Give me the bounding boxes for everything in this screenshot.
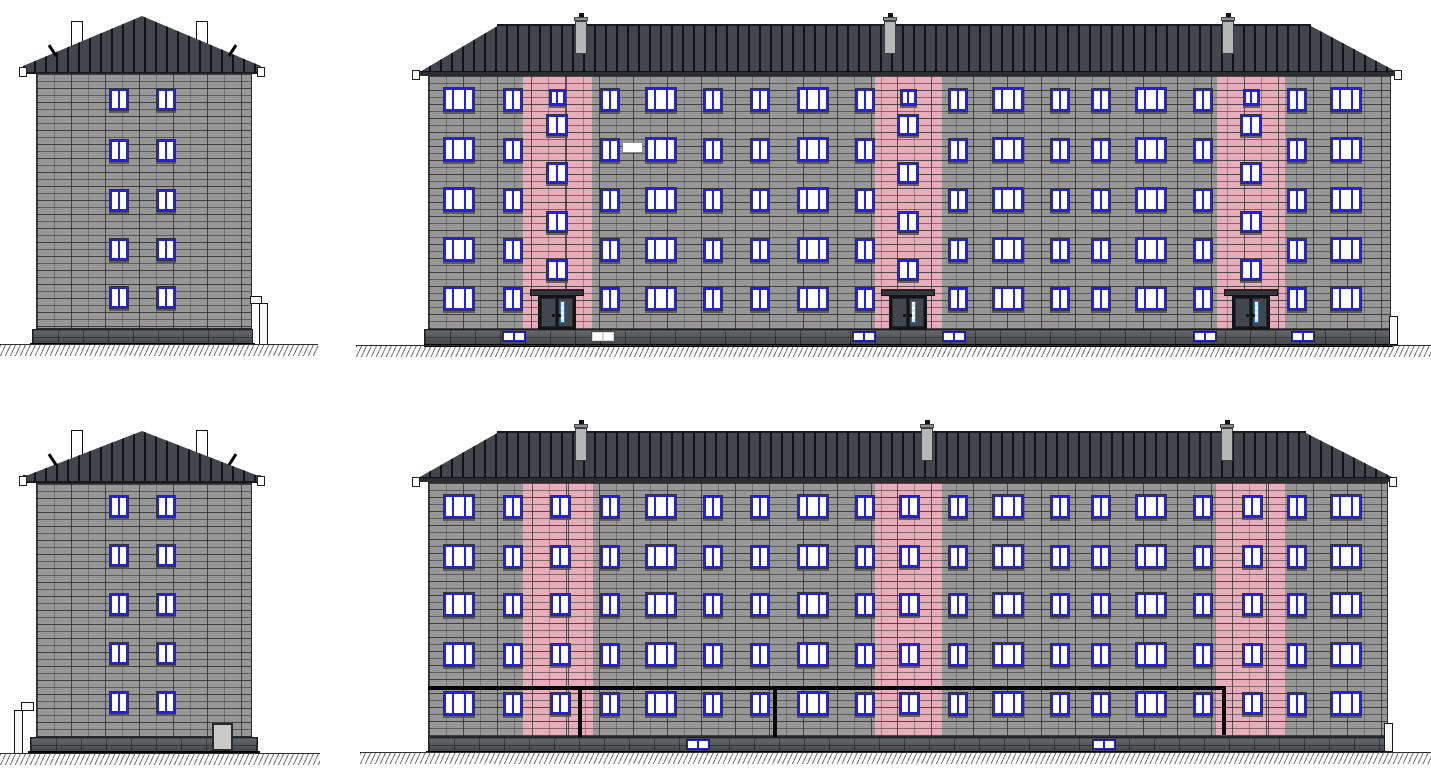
apartment-window (1330, 642, 1362, 667)
window-pane (808, 694, 817, 713)
stairwell-window (1242, 495, 1263, 518)
window-pane (820, 595, 826, 614)
apartment-window (992, 642, 1024, 667)
window-pane (1290, 548, 1296, 566)
apartment-window (992, 544, 1024, 569)
window-pane (902, 596, 909, 613)
window-pane (1253, 498, 1260, 515)
apartment-window (948, 545, 968, 569)
apartment-window (1091, 593, 1111, 617)
window-pane (1353, 694, 1359, 713)
window-pane (820, 497, 826, 516)
apartment-window (855, 643, 875, 667)
window-pane (454, 497, 463, 516)
window-pane (1204, 596, 1210, 614)
window-pane (656, 497, 665, 516)
window-pane (454, 547, 463, 566)
apartment-window (797, 494, 829, 519)
gas-pipe-drop (1222, 686, 1226, 735)
window-pane (800, 497, 806, 516)
apartment-window (1050, 692, 1070, 716)
stairwell-window (899, 593, 920, 616)
window-pane (1333, 547, 1339, 566)
gutter-cap (412, 477, 420, 487)
window-pane (808, 547, 817, 566)
window-pane (1341, 645, 1350, 664)
window-pane (454, 595, 463, 614)
apartment-window (503, 495, 523, 519)
window-pane (1146, 497, 1155, 516)
window-pane (995, 547, 1001, 566)
gas-pipe (428, 686, 1226, 690)
window-pane (1298, 596, 1304, 614)
window-pane (902, 695, 909, 712)
window-pane (1341, 694, 1350, 713)
window-pane (1094, 646, 1100, 664)
apartment-window (855, 545, 875, 569)
window-pane (1053, 646, 1059, 664)
window-pane (1196, 498, 1202, 516)
window-pane (706, 548, 712, 566)
apartment-window (443, 592, 475, 617)
window-pane (446, 547, 452, 566)
window-pane (603, 646, 609, 664)
window-pane (866, 646, 872, 664)
window-pane (656, 694, 665, 713)
apartment-window (600, 545, 620, 569)
window-pane (902, 646, 909, 663)
window-pane (995, 694, 1001, 713)
stairwell-window (550, 495, 571, 518)
window-pane (1015, 645, 1021, 664)
apartment-window (1091, 692, 1111, 716)
window-pane (668, 694, 674, 713)
apartment-window (992, 494, 1024, 519)
apartment-window (1050, 545, 1070, 569)
window-pane (706, 498, 712, 516)
apartment-window (992, 691, 1024, 716)
window-pane (820, 694, 826, 713)
window-pane (553, 498, 560, 515)
window-pane (648, 645, 654, 664)
roof-vent (1221, 428, 1233, 461)
window-pane (1094, 596, 1100, 614)
window-pane (951, 548, 957, 566)
window-pane (561, 596, 568, 613)
window-pane (466, 547, 472, 566)
apartment-window (1330, 691, 1362, 716)
window-pane (1003, 595, 1012, 614)
window-pane (553, 695, 560, 712)
window-pane (1353, 547, 1359, 566)
window-pane (753, 498, 759, 516)
window-pane (1158, 497, 1164, 516)
apartment-window (645, 494, 677, 519)
window-pane (1003, 645, 1012, 664)
apartment-window (750, 692, 770, 716)
window-pane (1353, 497, 1359, 516)
window-pane (910, 548, 917, 565)
window-pane (514, 548, 520, 566)
window-pane (611, 498, 617, 516)
window-pane (1158, 547, 1164, 566)
apartment-window (1193, 593, 1213, 617)
window-pane (1061, 695, 1067, 713)
apartment-window (797, 691, 829, 716)
plinth (428, 737, 1388, 752)
apartment-window (1287, 643, 1307, 667)
window-pane (866, 596, 872, 614)
window-pane (648, 595, 654, 614)
window-pane (454, 694, 463, 713)
window-pane (761, 548, 767, 566)
window-pane (1341, 595, 1350, 614)
window-pane (1245, 646, 1252, 663)
window-pane (951, 646, 957, 664)
apartment-window (645, 592, 677, 617)
window-pane (1061, 548, 1067, 566)
window-pane (858, 548, 864, 566)
window-pane (506, 498, 512, 516)
window-pane (466, 497, 472, 516)
window-pane (1245, 695, 1252, 712)
apartment-window (1091, 545, 1111, 569)
window-pane (506, 548, 512, 566)
apartment-window (443, 494, 475, 519)
apartment-window (600, 593, 620, 617)
window-pane (1196, 596, 1202, 614)
stairwell-window (1242, 643, 1263, 666)
apartment-window (703, 692, 723, 716)
apartment-window (645, 691, 677, 716)
apartment-window (750, 545, 770, 569)
apartment-window (992, 592, 1024, 617)
apartment-window (703, 495, 723, 519)
window-pane (466, 595, 472, 614)
apartment-window (1091, 643, 1111, 667)
apartment-window (1193, 495, 1213, 519)
window-pane (1102, 596, 1108, 614)
apartment-window (443, 544, 475, 569)
ground-hatch (360, 752, 1431, 764)
window-pane (1333, 694, 1339, 713)
window-pane (858, 498, 864, 516)
window-pane (561, 646, 568, 663)
window-pane (1333, 497, 1339, 516)
window-pane (1146, 645, 1155, 664)
window-pane (611, 596, 617, 614)
window-pane (1353, 595, 1359, 614)
apartment-window (503, 692, 523, 716)
window-pane (959, 548, 965, 566)
apartment-window (1091, 495, 1111, 519)
window-pane (910, 695, 917, 712)
apartment-window (855, 692, 875, 716)
window-pane (959, 596, 965, 614)
window-pane (656, 595, 665, 614)
roof-vent (575, 428, 587, 461)
window-pane (714, 646, 720, 664)
window-pane (761, 596, 767, 614)
roof-vent (921, 428, 933, 461)
window-pane (706, 596, 712, 614)
stairwell-window (1242, 692, 1263, 715)
window-pane (910, 646, 917, 663)
window-pane (1061, 498, 1067, 516)
window-pane (506, 695, 512, 713)
window-pane (1094, 548, 1100, 566)
apartment-window (1193, 643, 1213, 667)
window-pane (995, 645, 1001, 664)
window-pane (553, 646, 560, 663)
apartment-window (1135, 592, 1167, 617)
window-pane (1341, 497, 1350, 516)
window-pane (714, 695, 720, 713)
window-pane (858, 596, 864, 614)
stairwell-window (550, 692, 571, 715)
window-pane (706, 695, 712, 713)
apartment-window (600, 643, 620, 667)
window-pane (466, 645, 472, 664)
gas-pipe-drop (773, 686, 777, 737)
apartment-window (948, 593, 968, 617)
apartment-window (1050, 643, 1070, 667)
apartment-window (1193, 692, 1213, 716)
window-pane (1204, 695, 1210, 713)
window-pane (454, 645, 463, 664)
window-pane (506, 596, 512, 614)
window-pane (1290, 646, 1296, 664)
window-pane (800, 645, 806, 664)
apartment-window (600, 692, 620, 716)
window-pane (1298, 695, 1304, 713)
window-pane (1245, 596, 1252, 613)
window-pane (514, 498, 520, 516)
window-pane (753, 596, 759, 614)
window-pane (1146, 547, 1155, 566)
window-pane (951, 695, 957, 713)
window-pane (553, 596, 560, 613)
window-pane (1196, 646, 1202, 664)
window-pane (800, 694, 806, 713)
basement-window (686, 739, 710, 750)
apartment-window (1193, 545, 1213, 569)
window-pane (910, 498, 917, 515)
window-pane (1298, 498, 1304, 516)
window-pane (648, 497, 654, 516)
apartment-window (443, 691, 475, 716)
window-pane (1158, 645, 1164, 664)
window-pane (1053, 695, 1059, 713)
roof-ridge-line (497, 431, 1306, 433)
window-pane (1053, 548, 1059, 566)
window-pane (1333, 645, 1339, 664)
window-pane (1353, 645, 1359, 664)
hip-roof (418, 432, 1394, 478)
window-pane (808, 645, 817, 664)
window-pane (959, 498, 965, 516)
window-pane (648, 547, 654, 566)
apartment-window (797, 544, 829, 569)
window-pane (714, 548, 720, 566)
window-pane (959, 646, 965, 664)
window-pane (820, 645, 826, 664)
window-pane (648, 694, 654, 713)
window-pane (1102, 695, 1108, 713)
window-pane (603, 695, 609, 713)
window-pane (1003, 547, 1012, 566)
window-pane (866, 695, 872, 713)
window-pane (995, 595, 1001, 614)
apartment-window (645, 642, 677, 667)
window-pane (753, 646, 759, 664)
window-pane (866, 498, 872, 516)
window-pane (1015, 547, 1021, 566)
basement-window (1092, 739, 1116, 750)
window-pane (1094, 498, 1100, 516)
window-pane (688, 741, 697, 748)
window-pane (1053, 498, 1059, 516)
apartment-window (750, 643, 770, 667)
window-pane (866, 548, 872, 566)
window-pane (714, 498, 720, 516)
window-pane (1298, 548, 1304, 566)
apartment-window (503, 593, 523, 617)
apartment-window (1330, 544, 1362, 569)
stairwell-window (1242, 545, 1263, 568)
window-pane (611, 646, 617, 664)
window-pane (706, 646, 712, 664)
window-pane (1253, 695, 1260, 712)
window-pane (668, 645, 674, 664)
window-pane (1102, 498, 1108, 516)
window-pane (820, 547, 826, 566)
window-pane (561, 548, 568, 565)
window-pane (753, 695, 759, 713)
window-pane (1015, 497, 1021, 516)
window-pane (1204, 548, 1210, 566)
apartment-window (797, 592, 829, 617)
window-pane (808, 497, 817, 516)
apartment-window (797, 642, 829, 667)
window-pane (1061, 596, 1067, 614)
apartment-window (645, 544, 677, 569)
window-pane (761, 498, 767, 516)
apartment-window (1287, 593, 1307, 617)
window-pane (959, 695, 965, 713)
window-pane (858, 646, 864, 664)
apartment-window (948, 692, 968, 716)
window-pane (1146, 694, 1155, 713)
window-pane (902, 498, 909, 515)
window-pane (611, 548, 617, 566)
window-pane (514, 596, 520, 614)
window-pane (761, 646, 767, 664)
apartment-window (1287, 545, 1307, 569)
stairwell-window (1242, 593, 1263, 616)
window-pane (1253, 548, 1260, 565)
window-pane (1204, 498, 1210, 516)
window-pane (1138, 595, 1144, 614)
apartment-window (1050, 593, 1070, 617)
window-pane (1290, 695, 1296, 713)
window-pane (800, 595, 806, 614)
window-pane (466, 694, 472, 713)
elevation-drawing-sheet (0, 0, 1431, 774)
window-pane (446, 497, 452, 516)
window-pane (1102, 646, 1108, 664)
window-pane (951, 596, 957, 614)
window-pane (1245, 548, 1252, 565)
window-pane (446, 595, 452, 614)
window-pane (1094, 741, 1103, 748)
stairwell-window (899, 692, 920, 715)
window-pane (506, 646, 512, 664)
window-pane (1298, 646, 1304, 664)
apartment-window (703, 643, 723, 667)
window-pane (808, 595, 817, 614)
apartment-window (1287, 692, 1307, 716)
stairwell-window (899, 545, 920, 568)
window-pane (1138, 497, 1144, 516)
window-pane (1138, 645, 1144, 664)
window-pane (910, 596, 917, 613)
window-pane (603, 548, 609, 566)
window-pane (1158, 694, 1164, 713)
window-pane (1341, 547, 1350, 566)
window-pane (800, 547, 806, 566)
window-pane (1196, 548, 1202, 566)
window-pane (1253, 646, 1260, 663)
window-pane (514, 695, 520, 713)
window-pane (603, 596, 609, 614)
stairwell-window (899, 643, 920, 666)
apartment-window (855, 495, 875, 519)
apartment-window (750, 593, 770, 617)
stairwell-window (899, 495, 920, 518)
window-pane (1290, 498, 1296, 516)
gutter-cap (1389, 477, 1397, 487)
apartment-window (948, 495, 968, 519)
apartment-window (855, 593, 875, 617)
window-pane (1053, 596, 1059, 614)
apartment-window (1135, 642, 1167, 667)
window-pane (902, 548, 909, 565)
window-pane (995, 497, 1001, 516)
window-pane (1061, 646, 1067, 664)
window-pane (656, 645, 665, 664)
window-pane (561, 498, 568, 515)
window-pane (1245, 498, 1252, 515)
window-pane (668, 497, 674, 516)
window-pane (656, 547, 665, 566)
apartment-window (1287, 495, 1307, 519)
apartment-window (1330, 494, 1362, 519)
window-pane (761, 695, 767, 713)
window-pane (1015, 595, 1021, 614)
window-pane (858, 695, 864, 713)
apartment-window (1135, 544, 1167, 569)
window-pane (1290, 596, 1296, 614)
apartment-window (1135, 691, 1167, 716)
window-pane (446, 645, 452, 664)
apartment-window (503, 545, 523, 569)
apartment-window (948, 643, 968, 667)
window-pane (1094, 695, 1100, 713)
downspout (1384, 723, 1393, 752)
apartment-window (443, 642, 475, 667)
stairwell-window (550, 643, 571, 666)
